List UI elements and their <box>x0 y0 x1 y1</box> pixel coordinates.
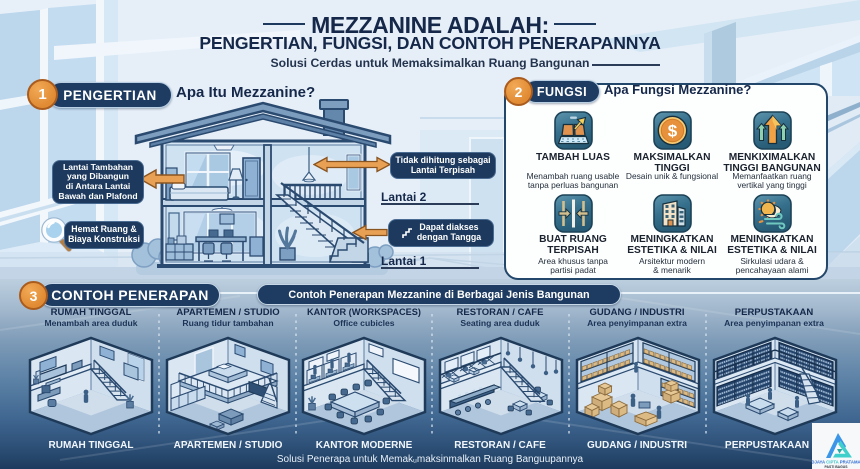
svg-text:PASTI BAGUS: PASTI BAGUS <box>825 465 849 469</box>
svg-text:$: $ <box>668 122 678 141</box>
svg-text:DJAYA CIPTA PRATAMA: DJAYA CIPTA PRATAMA <box>812 460 860 465</box>
